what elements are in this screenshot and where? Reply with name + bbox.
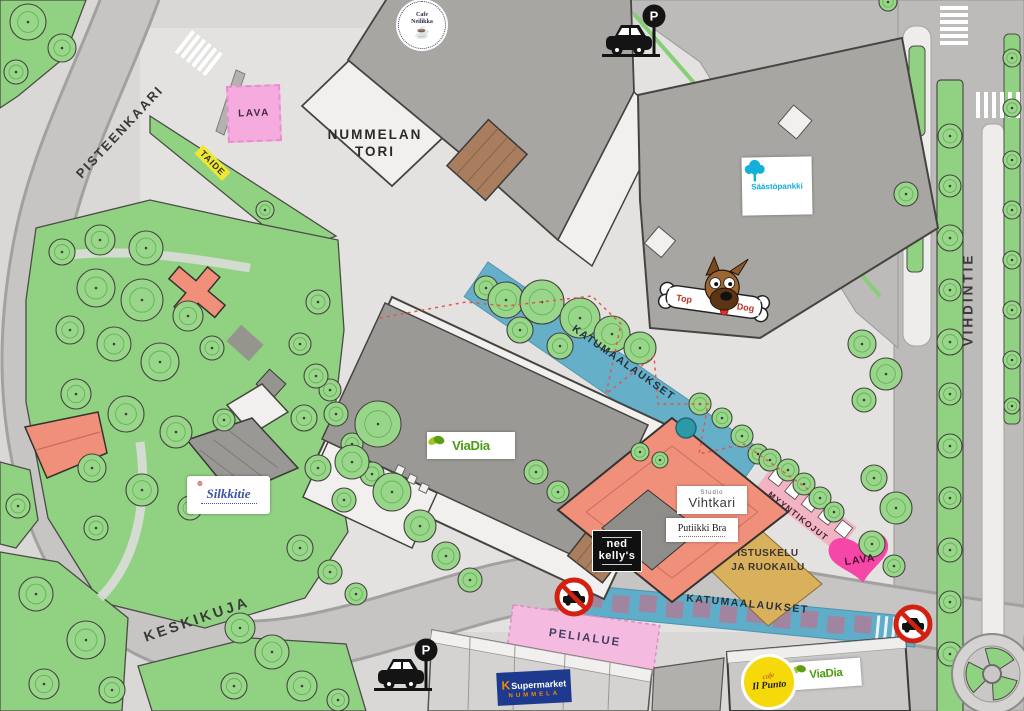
tree-icon [10,4,46,40]
square-title-line1: NUMMELAN [300,127,450,144]
tree-icon [332,488,356,512]
tree-icon [1003,151,1021,169]
tree-icon [894,182,918,206]
tree-icon [291,405,317,431]
tree-icon [61,379,91,409]
tree-icon [121,279,163,321]
tree-icon [939,279,961,301]
tree-icon [6,494,30,518]
tree-icon [631,443,649,461]
tree-icon [304,364,328,388]
tree-icon [524,460,548,484]
tree-icon [712,408,732,428]
tree-icon [939,591,961,613]
tree-icon [126,474,158,506]
tree-icon [848,330,876,358]
tree-icon [345,583,367,605]
tree-icon [937,329,963,355]
flower-icon: ❁ [197,481,203,488]
tree-icon [1003,251,1021,269]
tree-icon [870,358,902,390]
tree-icon [255,635,289,669]
painting-square [612,595,631,614]
tree-icon [56,316,84,344]
tree-icon [108,396,144,432]
tree-icon [84,516,108,540]
tree-icon [97,327,131,361]
tree-icon [221,673,247,699]
bank-tree-icon [741,157,767,183]
logo-cafe-neilikka: Cafe Neilikka ☕ [398,1,446,49]
tree-icon [938,538,962,562]
stage-area-lava: LAVA [226,84,282,143]
painting-square [827,616,846,635]
tree-icon [939,175,961,197]
nummela-text: NUMMELA [508,691,560,700]
tree-icon [404,510,436,542]
tree-icon [652,452,668,468]
tree-icon [731,425,753,447]
tree-icon [1004,398,1020,414]
tree-icon [1003,99,1021,117]
tree-icon [78,454,106,482]
silkkitie-tagline-rule [201,503,257,504]
tree-icon [67,621,105,659]
tree-icon [306,290,330,314]
logo-viadia: ViaDia [427,432,515,459]
tree-icon [547,333,573,359]
tree-icon [29,669,59,699]
tree-icon [373,473,411,511]
cafe-neilikka-line1: Cafe [416,12,428,19]
leaf-icon [427,432,445,448]
tree-icon [458,568,482,592]
tree-icon [324,402,348,426]
kellys-text: kelly's [599,551,636,563]
painting-square [665,600,684,619]
tree-icon [1003,351,1021,369]
seating-area-label: ISTUSKELU JA RUOKAILU [716,547,820,574]
viadia-text: ViaDia [452,438,490,453]
tree-icon [507,317,533,343]
tree-icon [852,388,876,412]
tree-icon [289,333,311,355]
tree-icon [335,445,369,479]
tree-icon [432,542,460,570]
logo-k-supermarket: K Supermarket NUMMELA [496,669,572,706]
seating-line2: JA RUOKAILU [716,561,820,575]
tree-icon [77,269,115,307]
no-entry-sign-icon [896,607,930,641]
pond-spot [676,418,696,438]
logo-putiikki-bra: Putiikki Bra [666,518,738,542]
tree-icon [938,124,962,148]
tree-icon [355,401,401,447]
supermarket-text: Supermarket [511,678,566,691]
tree-icon [173,301,203,331]
tree-icon [305,455,331,481]
tree-icon [85,225,115,255]
tree-icon [937,225,963,251]
roundabout-icon [952,634,1024,711]
tree-icon [880,492,912,524]
tree-icon [547,481,569,503]
tree-icon [160,416,192,448]
tree-icon [327,689,349,711]
tree-icon [213,409,235,431]
logo-viadia: ViaDia [790,658,862,691]
tree-icon [99,677,125,703]
tree-icon [48,34,76,62]
logo-silkkitie: ❁ Silkkitie [187,476,270,514]
vihtkari-text: Vihtkari [688,496,735,510]
tree-icon [824,502,844,522]
square-title-line2: TORI [300,144,450,161]
tree-icon [1003,301,1021,319]
viadia-text: ViaDia [809,667,843,681]
tree-icon [49,239,75,265]
logo-ned-kellys: ned kelly's [592,530,642,572]
tree-icon [861,465,887,491]
tree-icon [141,343,179,381]
tree-icon [318,560,342,584]
tree-icon [1003,201,1021,219]
tree-icon [287,535,313,561]
putiikki-flourish [679,536,725,537]
il-punto-text: Il Punto [752,679,787,693]
nummela-event-map: P P Top Dog [0,0,1024,711]
tree-icon [4,60,28,84]
no-entry-sign-icon [557,580,591,614]
parking-letter: P [650,9,659,24]
tree-icon [129,231,163,265]
street-label-vihdintie: VIHDINTIE [961,239,978,359]
tree-icon [19,577,53,611]
tree-icon [200,336,224,360]
tree-icon [938,434,962,458]
coffee-cup-icon: ☕ [415,26,430,38]
tree-icon [1003,49,1021,67]
k-mark: K [501,678,510,692]
seating-line1: ISTUSKELU [716,547,820,561]
tree-icon [256,201,274,219]
silkkitie-text: Silkkitie [206,487,250,500]
square-title: NUMMELAN TORI [300,127,450,161]
tree-icon [939,383,961,405]
ned-rule [602,564,632,565]
parking-letter: P [422,643,431,658]
logo-saastopankki: Säästöpankki [741,156,812,215]
putiikki-bra-text: Putiikki Bra [678,523,727,534]
tree-icon [939,487,961,509]
painting-square [639,594,658,613]
tree-icon [488,282,524,318]
tree-icon [287,671,317,701]
logo-studio-vihtkari: Studio Vihtkari [677,486,747,514]
painting-square [854,615,873,634]
